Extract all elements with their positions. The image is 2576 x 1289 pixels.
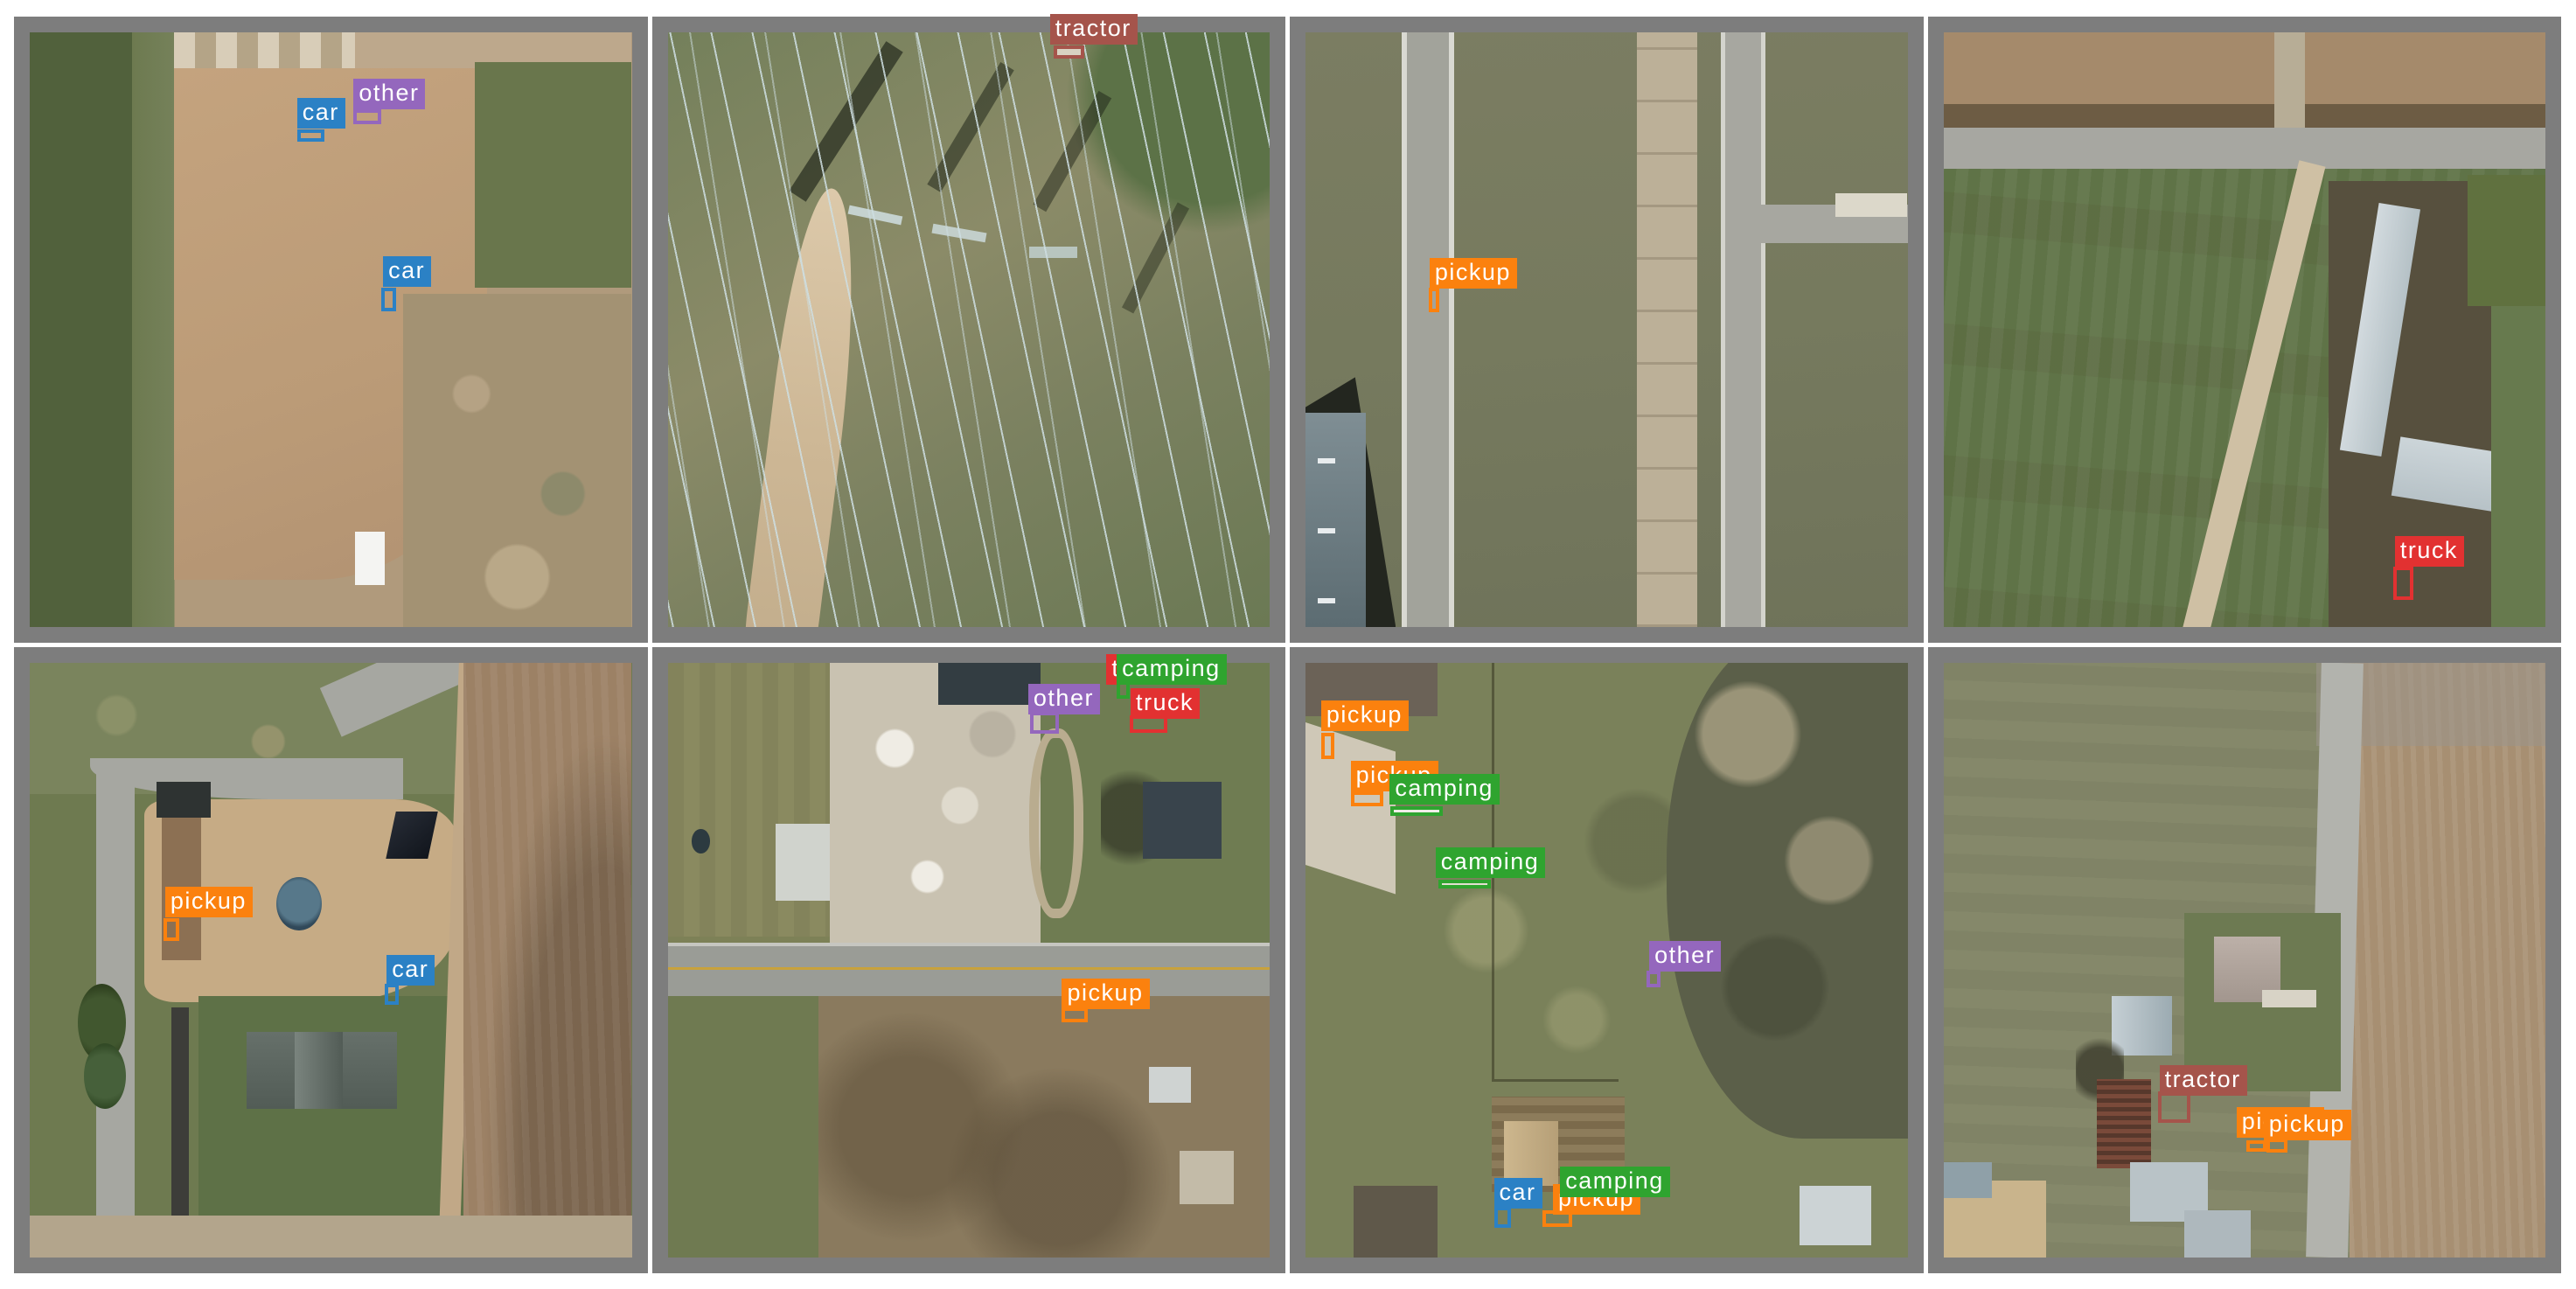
bounding-box-pickup [2266, 1139, 2287, 1153]
bounding-box-other [1030, 712, 1059, 733]
annotation-label-car: car [1494, 1178, 1542, 1209]
annotation-layer: truck [1944, 32, 2546, 627]
annotation-layer: tractorpickuppickup [1944, 663, 2546, 1258]
tile-cell-8: tractorpickuppickup [1928, 647, 2562, 1273]
annotation-label-camping: camping [1560, 1167, 1670, 1197]
bounding-box-pickup [1351, 791, 1384, 806]
bounding-box-camping [1390, 806, 1443, 816]
bounding-box-tractor [1054, 45, 1084, 59]
annotation-label-car: car [386, 955, 435, 986]
bounding-box-camping [1438, 880, 1491, 889]
annotation-label-pickup: pickup [1430, 258, 1517, 289]
bounding-box-car [381, 288, 396, 311]
bounding-box-pickup [2246, 1140, 2266, 1152]
annotation-mosaic: carothercar tractor [0, 0, 2576, 1289]
annotation-label-camping: camping [1436, 847, 1546, 878]
annotation-layer: pickup [1305, 32, 1908, 627]
annotation-layer: carothercar [30, 32, 632, 627]
annotation-label-camping: camping [1389, 774, 1500, 805]
tile-cell-5: pickupcar [14, 647, 648, 1273]
annotation-layer: truckcampingothertruckpickup [668, 663, 1271, 1258]
annotation-layer: tractor [668, 32, 1271, 627]
tile-cell-1: carothercar [14, 17, 648, 643]
annotation-label-pickup: pickup [1062, 979, 1149, 1009]
annotation-label-other: other [1649, 941, 1721, 972]
tile-cell-7: pickuppickupcampingcampingothercarpickup… [1290, 647, 1924, 1273]
annotation-label-truck: truck [2395, 536, 2464, 567]
tile-cell-2: tractor [652, 17, 1286, 643]
bounding-box-other [353, 109, 381, 125]
bounding-box-car [385, 984, 399, 1005]
bounding-box-car [1494, 1207, 1512, 1228]
annotation-label-tractor: tractor [2160, 1065, 2247, 1096]
annotation-label-pickup: pickup [1321, 700, 1409, 731]
annotation-layer: pickuppickupcampingcampingothercarpickup… [1305, 663, 1908, 1258]
annotation-label-other: other [1028, 684, 1100, 714]
tile-grid: carothercar tractor [14, 17, 2561, 1273]
annotation-label-tractor: tractor [1050, 14, 1138, 45]
annotation-label-pickup: pickup [165, 887, 253, 917]
annotation-label-pickup: pickup [2264, 1110, 2351, 1140]
tile-cell-4: truck [1928, 17, 2562, 643]
annotation-label-truck: truck [1131, 688, 1200, 719]
annotation-label-other: other [353, 79, 425, 109]
annotation-label-car: car [383, 256, 431, 287]
bounding-box-pickup [164, 918, 180, 941]
bounding-box-car [297, 129, 325, 142]
tile-cell-3: pickup [1290, 17, 1924, 643]
bounding-box-tractor [2158, 1091, 2190, 1123]
tile-cell-6: truckcampingothertruckpickup [652, 647, 1286, 1273]
bounding-box-pickup [1321, 733, 1334, 760]
bounding-box-pickup [1429, 288, 1439, 312]
bounding-box-truck [2393, 567, 2413, 600]
bounding-box-other [1647, 971, 1660, 987]
annotation-label-camping: camping [1117, 654, 1227, 685]
annotation-layer: pickupcar [30, 663, 632, 1258]
bounding-box-pickup [1062, 1007, 1088, 1022]
annotation-label-car: car [297, 98, 345, 129]
